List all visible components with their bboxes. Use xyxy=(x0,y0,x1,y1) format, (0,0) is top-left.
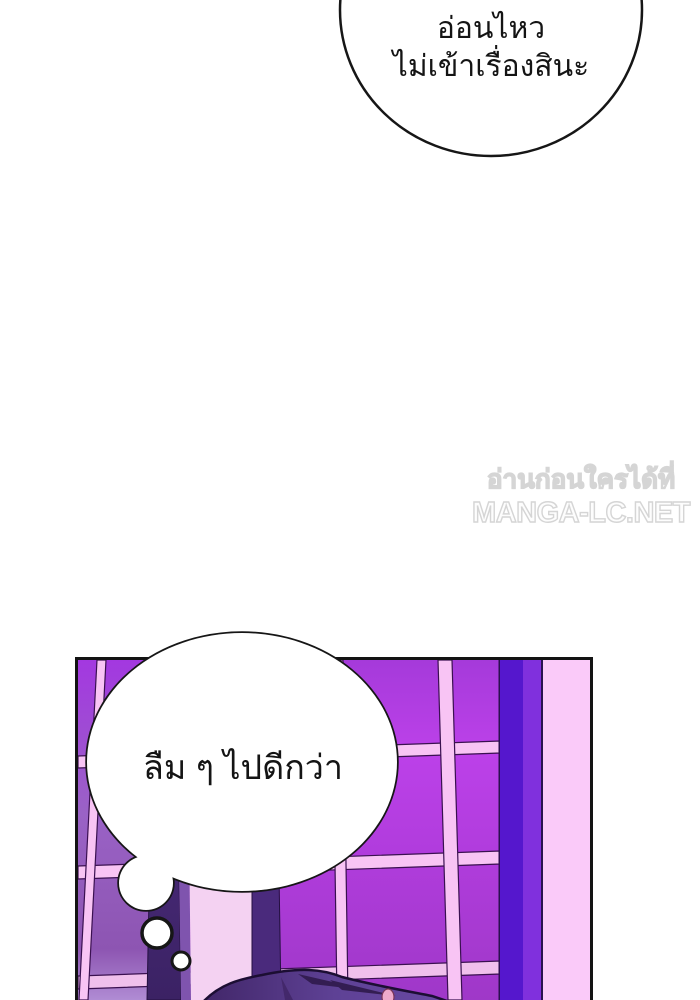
speech-bubble-line2: ไม่เข้าเรื่องสินะ xyxy=(336,48,646,86)
manga-page: { "top_bubble": { "lines": ["อ่อนไหว", "… xyxy=(0,0,700,1000)
speech-bubble-line1: อ่อนไหว xyxy=(336,10,646,48)
thought-bubble-text: ลืม ๆ ไปดีกว่า xyxy=(117,748,369,788)
wall-pink-right xyxy=(543,660,591,1000)
wall-pink-right-edge xyxy=(541,660,543,1000)
pillar-indigo xyxy=(500,660,523,1000)
watermark-site-name: MANGA-LC.NET xyxy=(462,497,700,529)
pillar-indigo-light xyxy=(523,660,542,1000)
thought-trail-bubble-large xyxy=(142,918,172,948)
watermark-thai-line: อ่านก่อนใครได้ที่ xyxy=(462,461,700,497)
speech-bubble-text: อ่อนไหว ไม่เข้าเรื่องสินะ xyxy=(336,10,646,86)
site-watermark: อ่านก่อนใครได้ที่ MANGA-LC.NET xyxy=(462,461,700,529)
character-hand xyxy=(382,989,394,1000)
thought-trail-bubble-small xyxy=(172,952,190,970)
